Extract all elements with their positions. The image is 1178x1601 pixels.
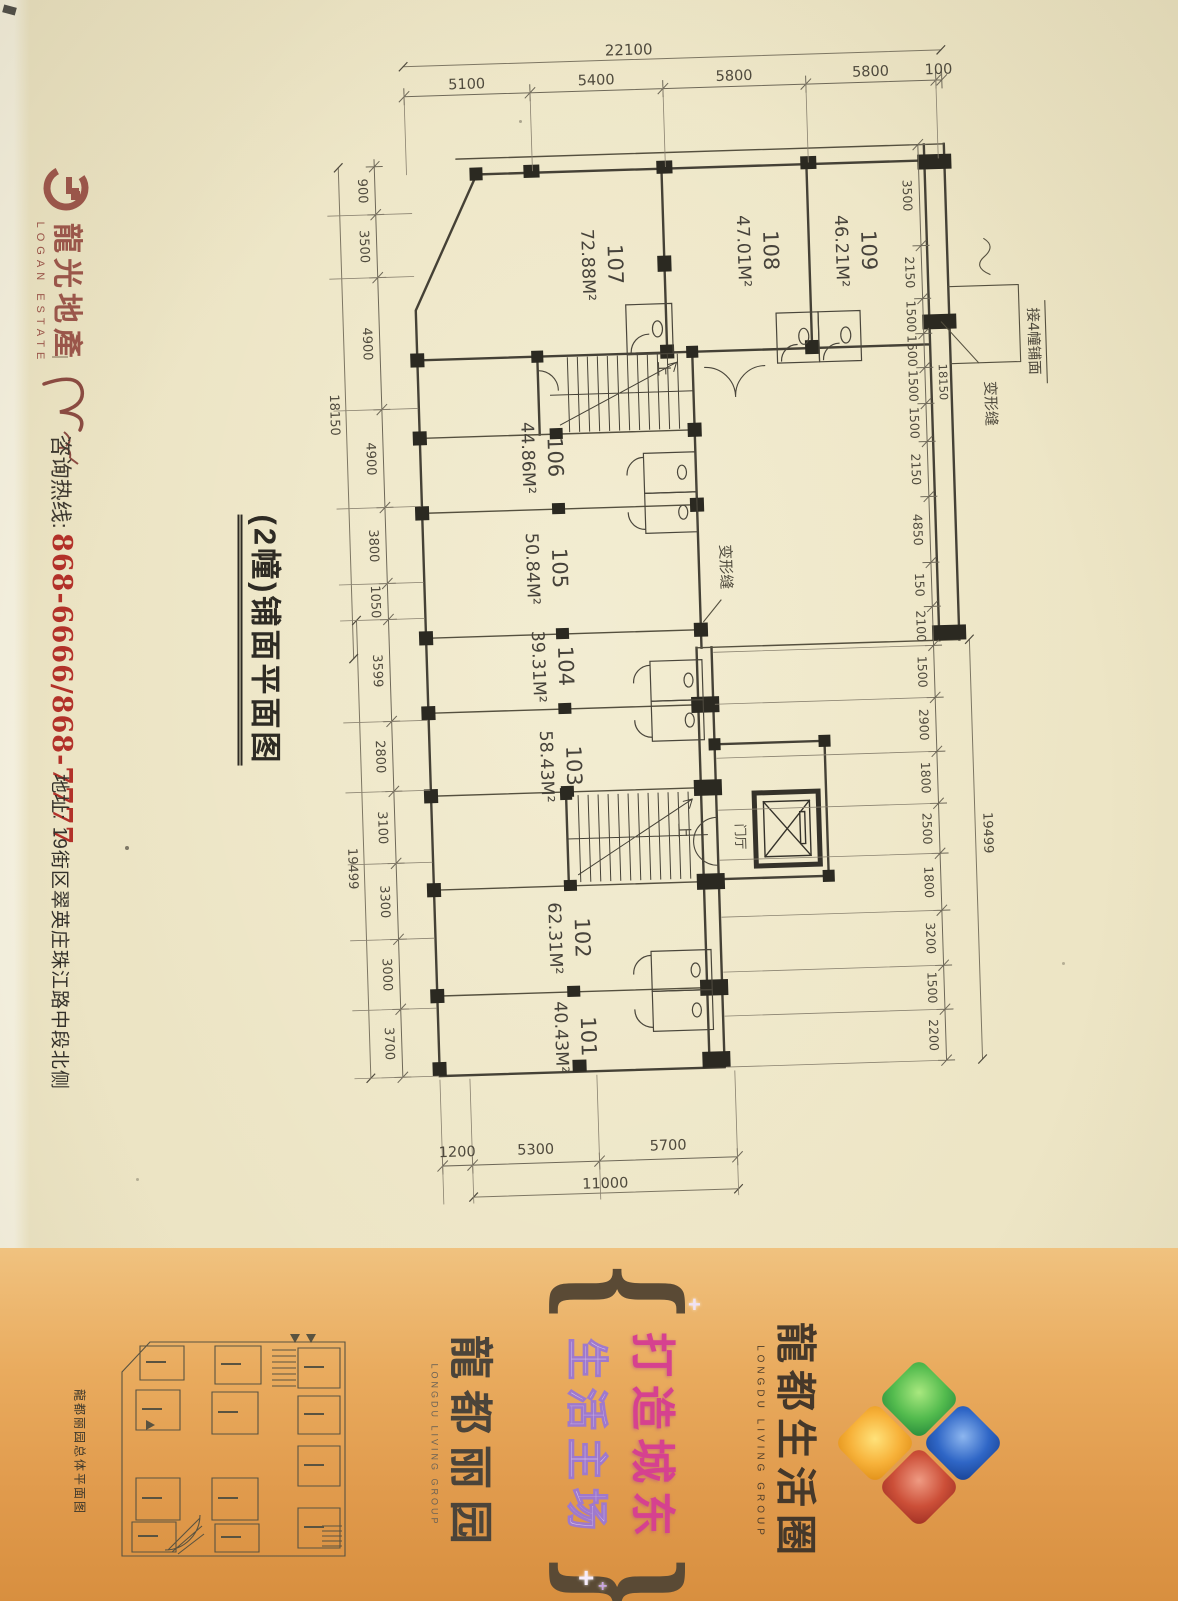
room-label: 106 xyxy=(542,437,567,478)
dimension-label: 150 xyxy=(912,573,928,597)
room-label: 40.43M² xyxy=(549,1001,571,1074)
dimension-label: 100 xyxy=(924,62,952,79)
room-label: 46.21M² xyxy=(830,215,852,288)
dimension-label: 5300 xyxy=(517,1142,554,1159)
slogan-block: { 打造城东 生活主场 } xyxy=(559,1261,689,1601)
sparkle-icon: + xyxy=(598,1578,607,1596)
dimension-label: 3000 xyxy=(379,958,395,992)
diamond-logo xyxy=(838,1362,998,1522)
plan-outer-walls xyxy=(411,144,973,1076)
dimension-label: 3500 xyxy=(900,179,916,211)
dimension-label: 4850 xyxy=(910,514,926,546)
dimension-label: 5100 xyxy=(448,76,485,93)
paper-speck xyxy=(1062,962,1065,965)
dimension-label: 1500 xyxy=(903,300,919,332)
brace-close: } xyxy=(550,1554,697,1601)
dimension-label: 2150 xyxy=(908,453,924,485)
siteplan-caption: 龍都丽园总体平面图 xyxy=(72,1389,89,1515)
dimension-label: 2200 xyxy=(926,1019,942,1051)
room-label: 103 xyxy=(561,745,586,786)
dimension-label: 3800 xyxy=(365,529,381,563)
dimension-label: 变形缝 xyxy=(716,544,735,590)
dimension-label: 2150 xyxy=(902,256,918,288)
dimension-label: 3500 xyxy=(356,230,372,264)
room-label: 47.01M² xyxy=(732,215,754,288)
brace-open: { xyxy=(550,1261,697,1322)
dimension-label: 5700 xyxy=(649,1137,686,1154)
toilet-cubicles xyxy=(613,298,883,1032)
structural-columns xyxy=(404,152,979,1077)
sparkle-icon: + xyxy=(688,1292,701,1318)
dimension-label: 变形缝 xyxy=(981,381,1000,427)
dimension-label: 3599 xyxy=(369,654,385,688)
hotline-label: 咨询热线: xyxy=(48,435,73,529)
room-label: 105 xyxy=(547,548,572,589)
dimension-label: 3100 xyxy=(374,811,390,845)
dimension-label: 接4幢铺面 xyxy=(1024,307,1044,375)
room-label: 107 xyxy=(602,244,627,285)
dimension-label: 上 xyxy=(675,823,693,839)
dimension-label: 4900 xyxy=(359,327,375,361)
slogan-line1: 打造城东 xyxy=(624,1332,689,1544)
slogan-line2: 生活主场 xyxy=(559,1332,620,1544)
estate-name: 龍都丽园 xyxy=(443,1335,507,1555)
room-label: 44.86M² xyxy=(516,422,538,495)
paper-speck xyxy=(136,1178,139,1181)
dimension-label: 5800 xyxy=(715,68,752,85)
brand-name-en: LOGAN ESTATE xyxy=(34,222,46,365)
dimension-label: 2100 xyxy=(913,610,929,642)
dimension-label: 22100 xyxy=(605,40,653,59)
dimension-label: 18150 xyxy=(936,363,951,400)
dimension-label: 1500 xyxy=(914,656,930,688)
dimension-label: 1500 xyxy=(907,407,923,439)
room-label: 50.84M² xyxy=(521,533,543,606)
dimension-label: 18150 xyxy=(326,394,342,436)
paper-speck xyxy=(125,846,129,850)
dimension-label: 上 xyxy=(654,361,672,377)
estate-subtitle: LONGDU LIVING GROUP xyxy=(430,1335,440,1555)
sparkle-icon: + xyxy=(578,1562,594,1594)
dimension-label: 门厅 xyxy=(732,823,748,849)
room-label: 108 xyxy=(758,230,783,271)
room-label: 72.88M² xyxy=(576,229,598,302)
dimension-label: 3200 xyxy=(923,922,939,954)
room-label: 101 xyxy=(576,1016,601,1057)
scanned-brochure-page: 10140.43M²10262.31M²10358.43M²10439.31M²… xyxy=(0,0,1178,1601)
estate-logo: 龍都丽园 LONGDU LIVING GROUP xyxy=(430,1335,507,1555)
dimension-label: 1500 xyxy=(906,370,922,402)
living-group-logo: 龍都生活圈 LONGDU LIVING GROUP xyxy=(755,1322,830,1562)
annotation-lines xyxy=(692,237,1055,622)
door-swings xyxy=(538,364,781,871)
dimension-label: 1500 xyxy=(904,335,920,367)
plan-labels: 10140.43M²10262.31M²10358.43M²10439.31M²… xyxy=(315,28,1069,1200)
living-group-en: LONGDU LIVING GROUP xyxy=(755,1322,766,1562)
dimension-label: 2800 xyxy=(372,740,388,774)
dimension-label: 2900 xyxy=(916,709,932,741)
logan-logo xyxy=(38,160,94,221)
address: 地址: 19街区翠英庄珠江路中段北侧 xyxy=(48,774,75,1090)
dimension-label: 1800 xyxy=(921,866,937,898)
brand-name-cn: 龍光地產 xyxy=(48,222,92,365)
room-label: 104 xyxy=(553,646,578,687)
sidebar-divider xyxy=(52,356,68,358)
room-label: 58.43M² xyxy=(535,730,557,803)
room-label: 39.31M² xyxy=(527,630,549,703)
dimension-label: 900 xyxy=(354,178,370,203)
dimension-label: 1500 xyxy=(924,971,940,1003)
dimension-label: 1200 xyxy=(439,1144,476,1161)
elevator xyxy=(754,791,820,866)
paper-speck xyxy=(519,120,522,123)
dimension-label: 4900 xyxy=(362,442,378,476)
dimension-label: 3300 xyxy=(376,885,392,919)
room-label: 62.31M² xyxy=(543,902,565,975)
dimension-label: 1050 xyxy=(367,585,383,619)
room-label: 102 xyxy=(570,917,595,958)
dimension-label: 2500 xyxy=(919,813,935,845)
plan-title-wrap: (2幢)铺面平面图 xyxy=(246,515,291,766)
dimension-label: 5800 xyxy=(852,64,889,81)
living-group-name: 龍都生活圈 xyxy=(770,1322,830,1562)
page-title: (2幢)铺面平面图 xyxy=(238,515,283,766)
dimension-label: 3700 xyxy=(381,1027,397,1061)
brand-block: 龍光地產 LOGAN ESTATE xyxy=(34,222,92,365)
dimension-label: 19499 xyxy=(979,812,995,854)
room-label: 109 xyxy=(856,230,881,271)
dimension-label: 19499 xyxy=(344,848,360,890)
dimension-label: 1800 xyxy=(918,762,934,794)
dimension-label: 5400 xyxy=(577,72,614,89)
siteplan-thumbnail xyxy=(122,1334,345,1556)
dimension-label: 11000 xyxy=(582,1175,629,1192)
